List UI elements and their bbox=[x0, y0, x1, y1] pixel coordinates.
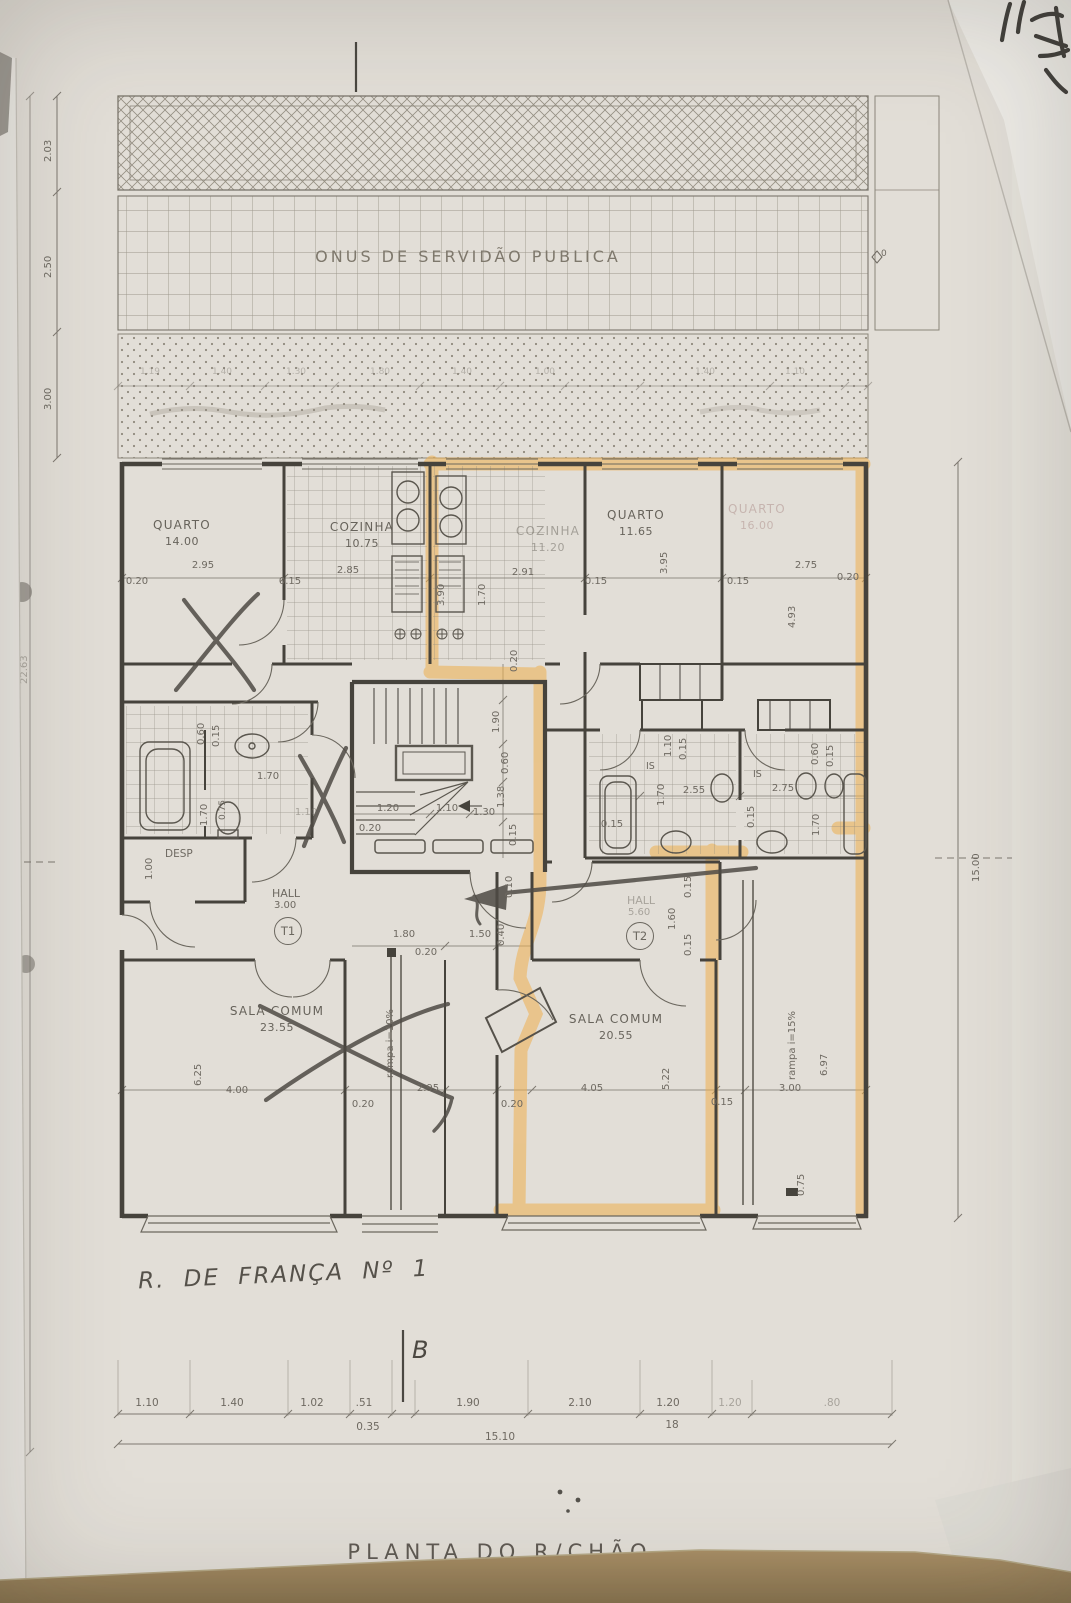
floor-plan-photo: ONUS DE SERVIDÃO PUBLICA 0 2.03 2.50 3.0… bbox=[0, 0, 1071, 1603]
servitude-bands bbox=[118, 96, 939, 458]
staircase bbox=[356, 688, 533, 853]
hole-punches bbox=[12, 582, 35, 973]
floor-plan-drawing bbox=[0, 0, 1071, 1603]
tiled-floors bbox=[126, 466, 864, 854]
ink-dots bbox=[558, 1490, 581, 1513]
